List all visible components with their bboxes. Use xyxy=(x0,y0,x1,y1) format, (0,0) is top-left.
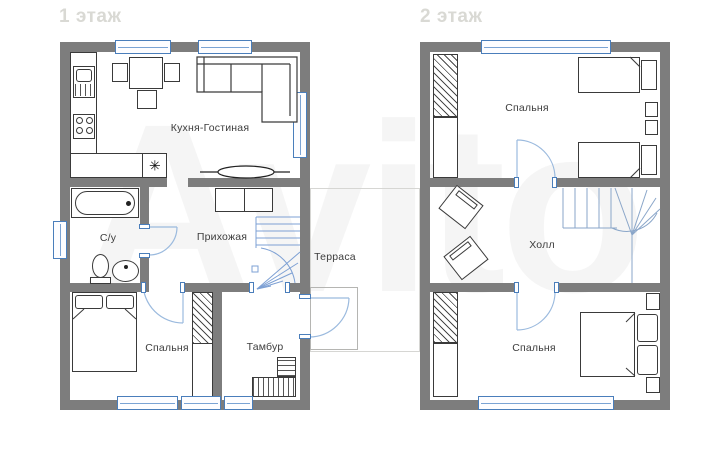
f1-vestibule-opening-jamb-right xyxy=(285,282,290,293)
bed-fold-marks xyxy=(73,57,640,376)
f1-bedroom-door-jamb-left xyxy=(141,282,146,293)
stairs-floor1 xyxy=(252,217,300,289)
floor2-title: 2 этаж xyxy=(420,6,482,28)
room-label-bathroom: С/у xyxy=(100,232,116,244)
room-label-f2-bedroom-bottom: Спальня xyxy=(512,342,556,354)
plan-linework xyxy=(0,0,720,453)
f1-entrance-jamb-bottom xyxy=(299,334,311,339)
room-label-hallway: Прихожая xyxy=(197,231,247,243)
f1-bath-door-jamb-bottom xyxy=(139,253,150,258)
f2-bedroom2-door-jamb-right xyxy=(554,282,559,293)
room-label-kitchen-living: Кухня-Гостиная xyxy=(171,122,249,134)
floor1-title: 1 этаж xyxy=(59,6,121,28)
room-label-hall: Холл xyxy=(529,239,555,251)
f2-bedroom1-door-jamb-right xyxy=(552,177,557,188)
tv-console xyxy=(200,166,290,178)
f1-bath-door-jamb-top xyxy=(139,224,150,229)
f1-entrance-jamb-top xyxy=(299,294,311,299)
room-label-f1-bedroom: Спальня xyxy=(145,342,189,354)
room-label-terrace: Терраса xyxy=(314,251,356,263)
f2-bedroom1-door-jamb-left xyxy=(514,177,519,188)
room-label-f2-bedroom-top: Спальня xyxy=(505,102,549,114)
room-label-vestibule: Тамбур xyxy=(247,341,284,353)
floor-plan-canvas: Avito xyxy=(0,0,720,453)
f1-bedroom-door-jamb-right xyxy=(180,282,185,293)
stairs-floor2 xyxy=(563,188,660,283)
fridge-snowflake-icon: ✳ xyxy=(149,158,161,175)
f2-bedroom2-door-jamb-left xyxy=(514,282,519,293)
f1-vestibule-opening-jamb-left xyxy=(249,282,254,293)
sofa xyxy=(197,57,297,122)
